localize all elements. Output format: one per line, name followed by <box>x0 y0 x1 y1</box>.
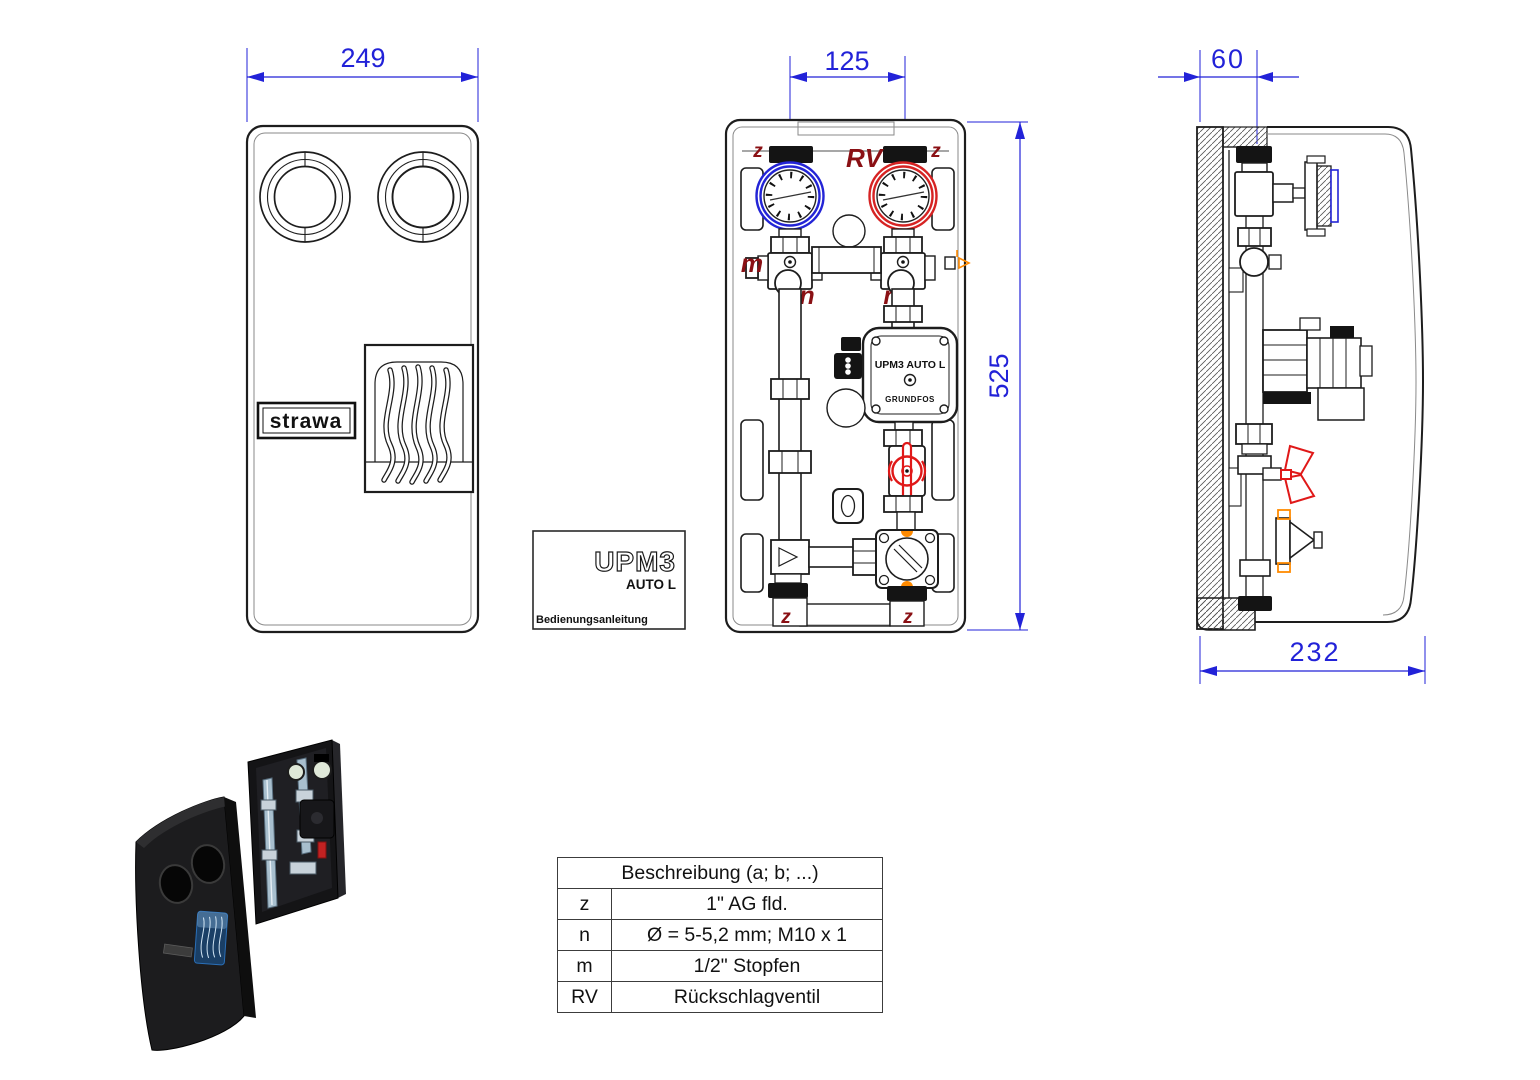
legend-row-n: n Ø = 5-5,2 mm; M10 x 1 <box>558 920 883 951</box>
iso-3d-view <box>90 720 420 1060</box>
legend-row-z: z 1" AG fld. <box>558 889 883 920</box>
legend-value-n: Ø = 5-5,2 mm; M10 x 1 <box>612 920 883 951</box>
mixing-valve <box>876 530 938 588</box>
legend-key-m: m <box>558 951 612 982</box>
legend-value-m: 1/2" Stopfen <box>612 951 883 982</box>
thermometer-gauge-blue <box>757 163 824 230</box>
manual-caption-text: Bedienungsanleitung <box>536 614 648 626</box>
mounting-hole-top <box>833 215 865 247</box>
legend-header: Beschreibung (a; b; ...) <box>558 858 883 889</box>
label-z-top-right: z <box>930 141 941 162</box>
technical-drawing-sheet: 249 strawa <box>0 0 1540 1080</box>
legend-row-rv: RV Rückschlagventil <box>558 982 883 1013</box>
legend-value-z: 1" AG fld. <box>612 889 883 920</box>
manual-booklet: UPM3 AUTO L Bedienungsanleitung <box>530 528 690 634</box>
label-rv: RV <box>846 143 885 173</box>
port-cap-bottom-right <box>887 586 927 601</box>
pump-model-text: UPM3 AUTO L <box>875 359 946 371</box>
port-cap-top-left <box>769 146 813 163</box>
legend-table: Beschreibung (a; b; ...) z 1" AG fld. n … <box>557 857 883 1013</box>
wave-logo-panel <box>365 345 473 492</box>
side-thermometer-edge <box>1305 156 1338 236</box>
side-red-handle <box>1263 446 1314 503</box>
legend-key-rv: RV <box>558 982 612 1013</box>
pump-brand-text: GRUNDFOS <box>885 395 935 404</box>
legend-value-rv: Rückschlagventil <box>612 982 883 1013</box>
drain-stub <box>945 257 955 269</box>
label-z-bottom-right: z <box>902 607 913 628</box>
iso-assembly <box>248 740 346 924</box>
manual-variant-text: AUTO L <box>626 577 676 592</box>
label-z-top-left: z <box>752 141 763 162</box>
bypass-pipe <box>812 247 881 273</box>
port-cap-top-right <box>883 146 927 163</box>
dim-525-text: 525 <box>984 353 1014 398</box>
dim-249-text: 249 <box>340 43 385 73</box>
legend-key-n: n <box>558 920 612 951</box>
strawa-logo-text: strawa <box>270 410 343 433</box>
internal-view-drawing: 125 525 z z <box>715 40 1045 685</box>
dimension-249: 249 <box>247 43 478 122</box>
dimension-232: 232 <box>1200 636 1425 684</box>
label-m: m <box>741 250 763 278</box>
side-check-valve <box>1276 510 1322 572</box>
side-bottom-cap <box>1238 596 1272 611</box>
side-pipe-assembly <box>1235 146 1372 611</box>
legend-row-m: m 1/2" Stopfen <box>558 951 883 982</box>
front-view-drawing: 249 strawa <box>230 40 510 652</box>
strawa-logo-plate: strawa <box>258 403 355 438</box>
dim-125-text: 125 <box>824 46 869 76</box>
sensor-pocket <box>833 489 863 523</box>
side-top-cap <box>1236 146 1272 163</box>
side-view-drawing: 60 232 <box>1140 40 1485 700</box>
dim-60-text: 60 <box>1211 44 1245 74</box>
dimension-525: 525 <box>967 122 1028 630</box>
iso-cover <box>136 797 256 1050</box>
dim-232-text: 232 <box>1289 637 1340 667</box>
thermometer-gauge-red <box>870 163 937 230</box>
side-pump-cluster <box>1263 318 1372 420</box>
mounting-hole-mid <box>827 389 865 427</box>
legend-key-z: z <box>558 889 612 920</box>
port-cap-bottom-left <box>768 583 808 598</box>
manual-model-text: UPM3 <box>594 546 676 577</box>
label-z-bottom-left: z <box>780 607 791 628</box>
